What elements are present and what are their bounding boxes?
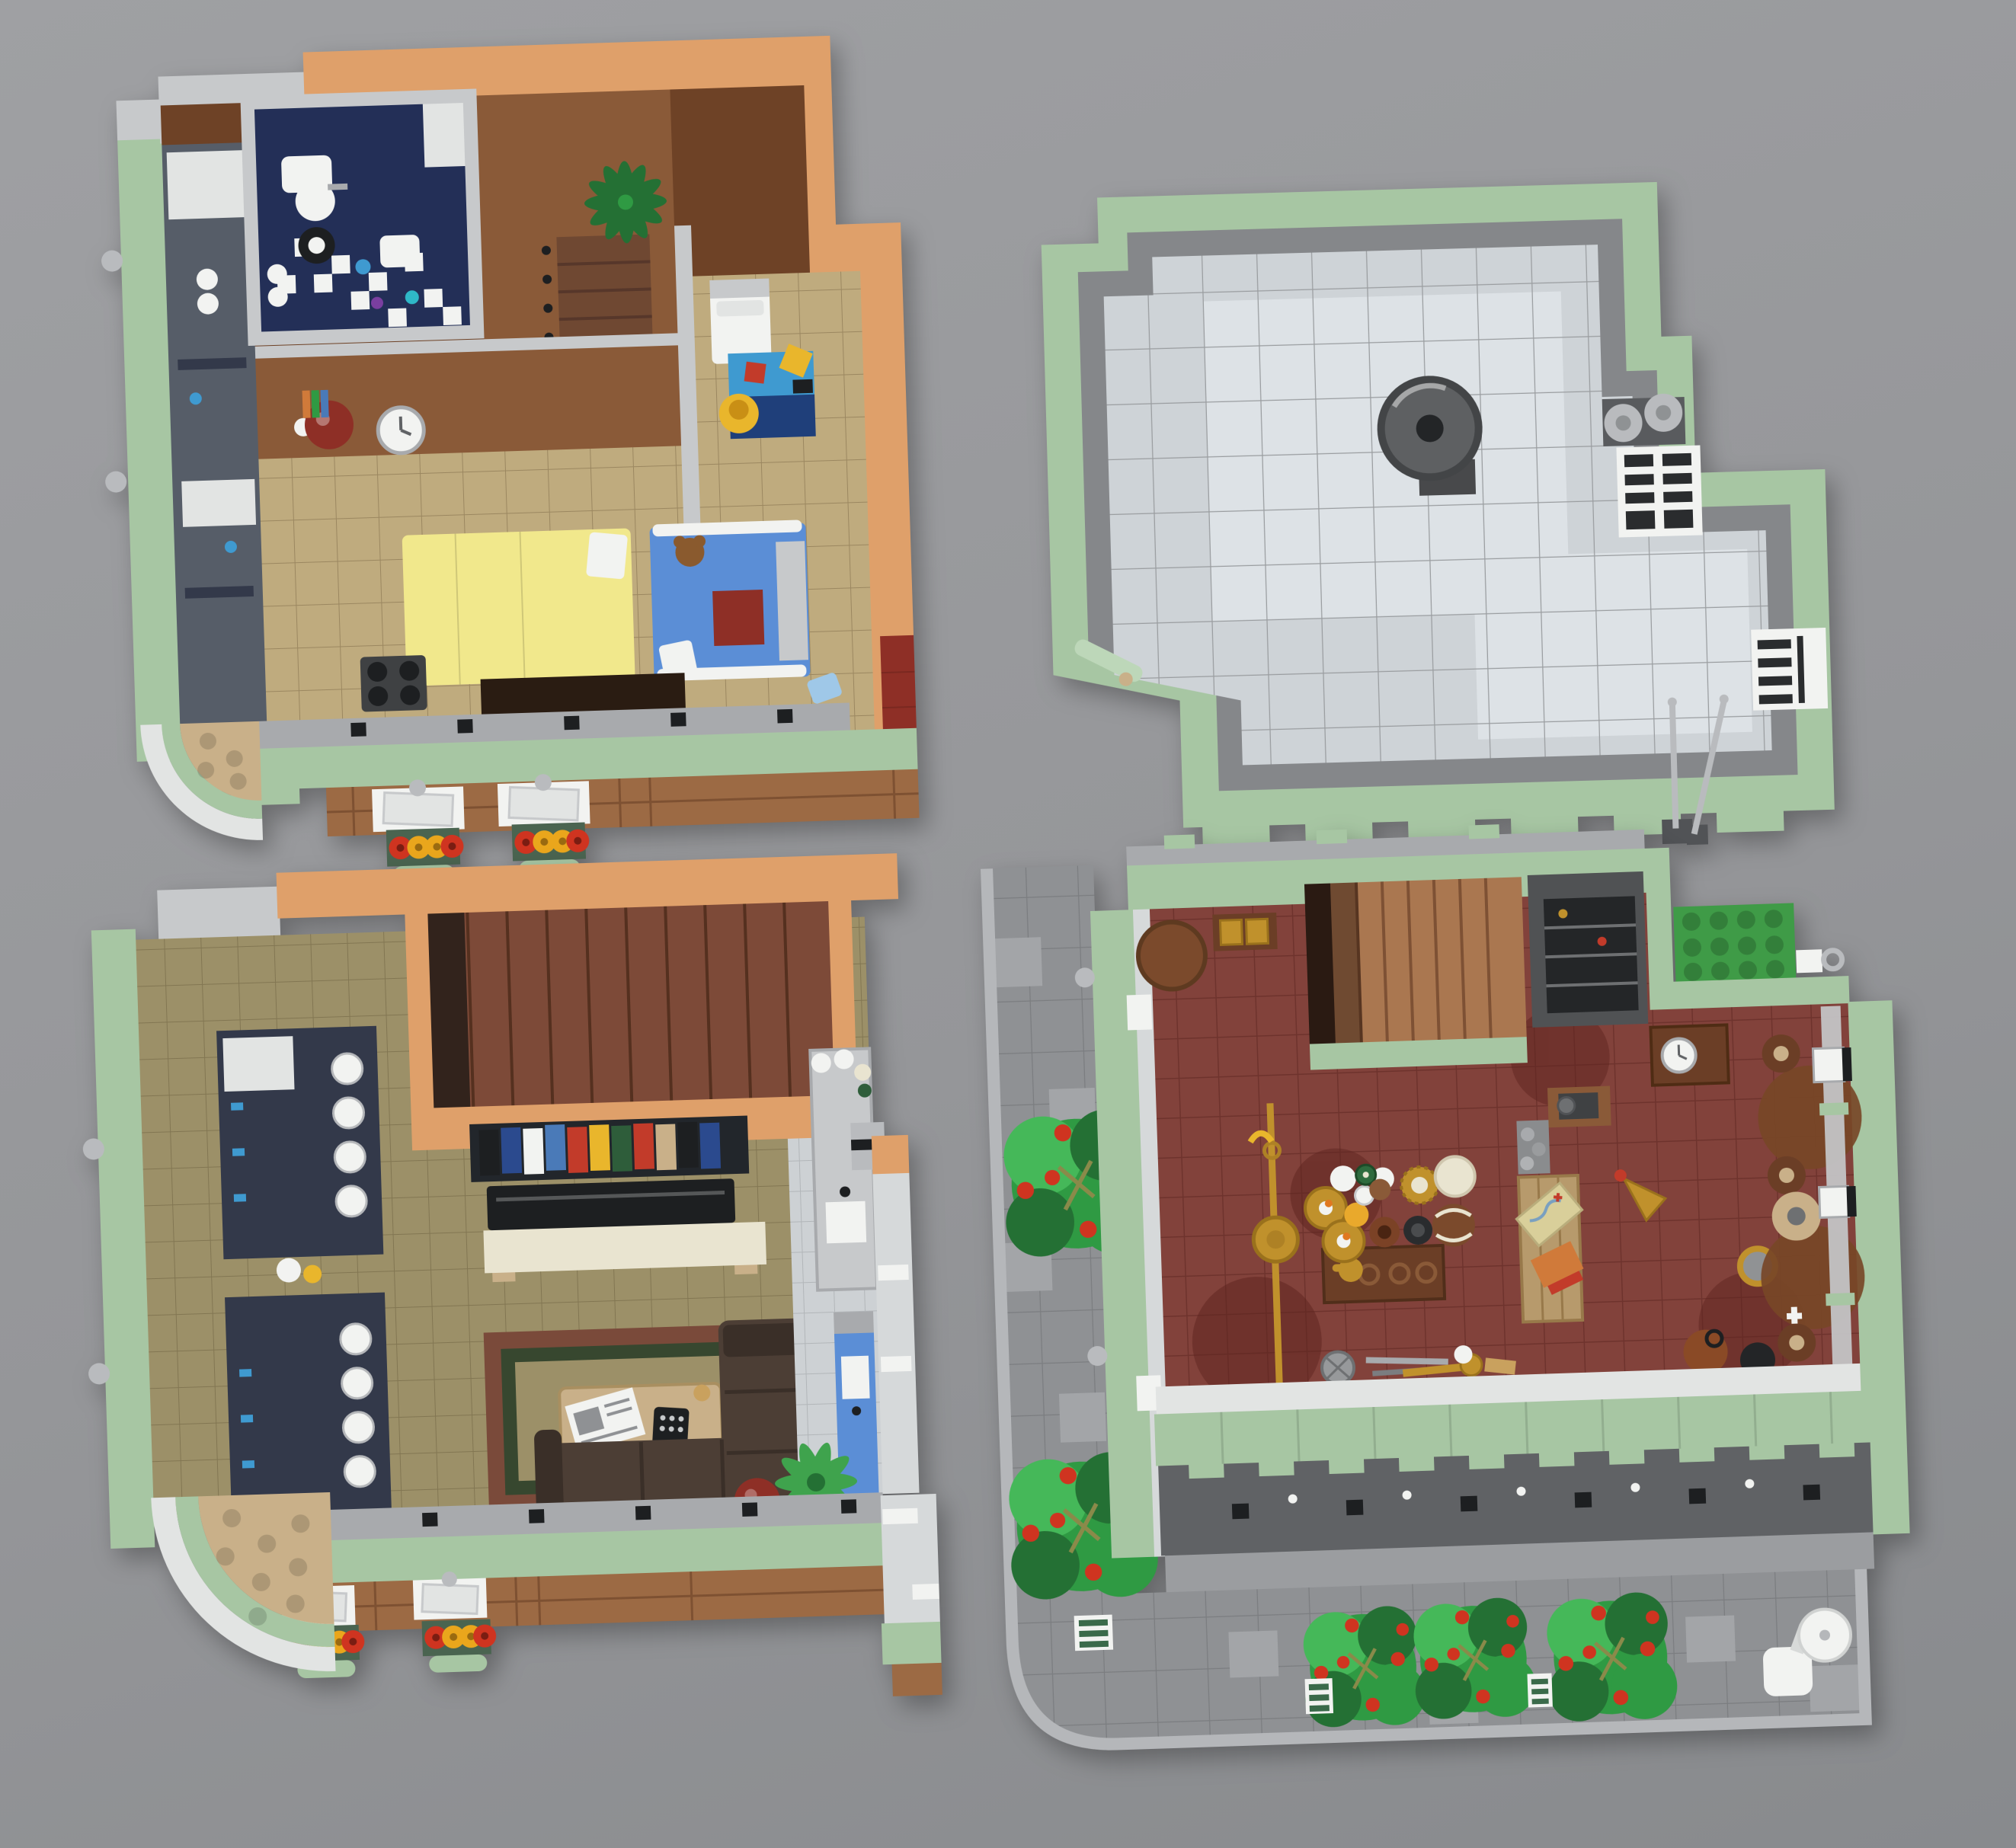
green-roof-plate	[1673, 903, 1796, 981]
white-box	[181, 479, 256, 527]
curved-corner	[151, 1492, 335, 1677]
island-sink	[841, 1356, 870, 1399]
upper-floor-svg	[109, 32, 928, 910]
flower-box	[422, 1619, 498, 1673]
price-tag	[1819, 1186, 1856, 1218]
stone-shelf	[1516, 1120, 1550, 1174]
living-floor-module	[90, 852, 951, 1731]
wall-clock	[377, 407, 424, 454]
kitchen-wing-facade	[878, 1494, 942, 1696]
ground-floor-svg	[974, 817, 1957, 1777]
yellow-bed	[402, 528, 635, 686]
shelf	[185, 586, 254, 599]
south-facade	[274, 1491, 942, 1715]
red-bunk	[880, 635, 917, 744]
spoked-wheel	[1321, 1351, 1354, 1384]
bathroom	[248, 96, 478, 339]
roof-module	[1036, 166, 1848, 874]
blue-play-mat	[717, 343, 816, 439]
wing-north-wall	[805, 222, 902, 273]
storm-grate	[1527, 1674, 1552, 1708]
tv	[487, 1178, 736, 1230]
media-wall	[469, 1115, 766, 1283]
staircase	[1304, 877, 1528, 1069]
connector-pin	[101, 250, 123, 272]
round-shop-table	[1138, 921, 1207, 990]
ground-floor-module	[974, 817, 1957, 1777]
price-tag	[1813, 1047, 1851, 1082]
north-ledge	[157, 887, 280, 939]
white-bed	[709, 279, 771, 364]
stair-void	[427, 913, 470, 1108]
book-stack	[302, 390, 329, 418]
roof-svg	[1036, 166, 1848, 874]
footboard	[776, 541, 808, 660]
tall-cabinet	[1528, 871, 1649, 1028]
gold-chest	[1212, 913, 1278, 951]
gray-ring	[1823, 950, 1842, 969]
sideboard	[483, 1222, 766, 1274]
toilet	[379, 235, 420, 268]
sink	[826, 1201, 867, 1244]
pillow	[586, 532, 628, 579]
shelf	[178, 357, 246, 370]
east-wall-top	[872, 1135, 910, 1174]
sewing-machine-table	[1547, 1086, 1611, 1128]
island-end	[834, 1311, 874, 1335]
toy-camera	[792, 379, 813, 394]
faucet	[328, 184, 347, 190]
west-wall-cap	[116, 100, 162, 141]
price-tag	[1127, 994, 1153, 1030]
box-bracket	[429, 1655, 488, 1673]
storm-grate	[1074, 1615, 1113, 1651]
roof-hatch-grate	[1751, 628, 1828, 711]
storm-grate	[1305, 1678, 1334, 1714]
toy-block	[744, 362, 766, 384]
white-box	[222, 1036, 294, 1092]
map-desk	[1515, 1175, 1586, 1322]
pillow	[716, 300, 764, 317]
stair-opening	[481, 673, 686, 714]
colored-books	[478, 1120, 721, 1176]
wall-clock-case	[1650, 1025, 1728, 1085]
white-cabinet	[167, 150, 245, 219]
south-facade	[1154, 1364, 1874, 1593]
staircase	[405, 900, 858, 1150]
stair-void	[1304, 884, 1336, 1046]
headboard	[709, 279, 770, 299]
living-floor-svg	[90, 852, 951, 1731]
upper-floor-module	[109, 32, 928, 910]
photo-stage	[0, 0, 2016, 1848]
blanket-patch	[712, 590, 764, 646]
basket-lid	[1435, 1156, 1476, 1197]
connector-pin	[105, 471, 127, 493]
bush	[1413, 1597, 1537, 1720]
bush	[1546, 1591, 1678, 1722]
armrest	[534, 1429, 565, 1515]
stove	[360, 655, 427, 712]
shower-cabinet	[423, 99, 469, 168]
white-brick	[1796, 949, 1822, 973]
curved-corner	[140, 721, 263, 844]
